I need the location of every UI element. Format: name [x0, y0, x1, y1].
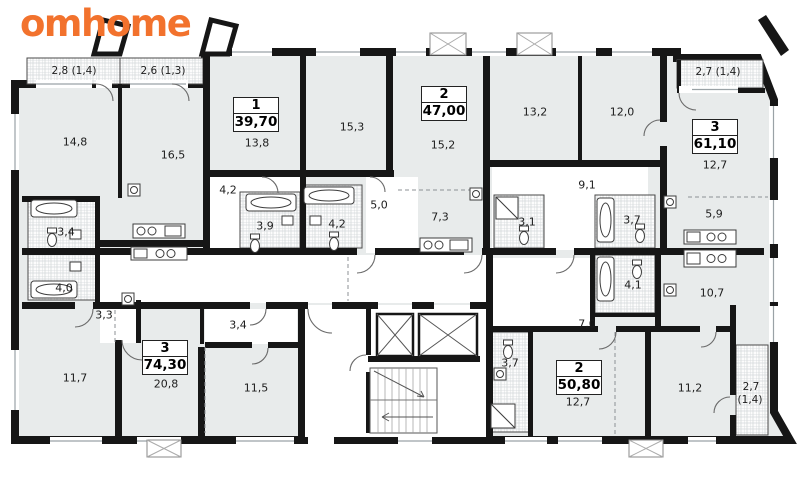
- omhome-logo: omhome: [20, 2, 190, 46]
- apartment-total-area: 50,80: [557, 377, 601, 394]
- elevator-shafts: [377, 314, 477, 356]
- room-area-label: 3,7: [623, 214, 641, 227]
- room-area-label: 4,2: [328, 218, 346, 231]
- apartment-rooms-count: 2: [557, 361, 601, 377]
- room-area-label: 5,0: [370, 199, 388, 212]
- apartment-badge[interactable]: 1 39,70: [233, 97, 279, 132]
- room-area-label: 4,1: [624, 279, 642, 292]
- room-area-label: 16,5: [161, 149, 186, 162]
- balcony-area-label: 2,7: [743, 381, 760, 393]
- apartment-rooms-count: 1: [234, 98, 278, 114]
- room-area-label: 3,3: [95, 309, 113, 322]
- room-area-label: 12,7: [703, 159, 728, 172]
- room-area-label: 3,1: [518, 216, 536, 229]
- apartment-total-area: 74,30: [143, 357, 187, 374]
- room-area-label: 7,0: [578, 318, 596, 331]
- floorplan-page: omhome 1 39,70 2 47,00 3 61,10 3 74,30 2…: [0, 0, 800, 480]
- room-area-label: 12,0: [610, 106, 635, 119]
- room-area-label: 3,7: [501, 357, 519, 370]
- room-area-label: 4,0: [55, 282, 73, 295]
- room-area-label: 15,3: [340, 121, 365, 134]
- floorplan-drawing: [0, 0, 800, 480]
- room-area-label: 5,9: [705, 208, 723, 221]
- room-area-label: 14,8: [63, 136, 88, 149]
- apartment-rooms-count: 3: [143, 341, 187, 357]
- room-area-label: 10,7: [700, 287, 725, 300]
- room-area-label: 11,2: [678, 382, 703, 395]
- balcony-area-label: 2,8 (1,4): [52, 65, 97, 77]
- apartment-rooms-count: 2: [422, 87, 466, 103]
- apartment-rooms-count: 3: [693, 120, 737, 136]
- room-area-label: 11,7: [63, 372, 88, 385]
- room-area-label: 11,5: [244, 382, 269, 395]
- room-area-label: 4,2: [219, 184, 237, 197]
- apartment-total-area: 47,00: [422, 103, 466, 120]
- room-area-label: 13,8: [245, 137, 270, 150]
- apartment-badge[interactable]: 2 47,00: [421, 86, 467, 121]
- balcony-area-label: 2,6 (1,3): [141, 65, 186, 77]
- room-area-label: 13,2: [523, 106, 548, 119]
- room-area-label: 12,7: [566, 396, 591, 409]
- apartment-total-area: 61,10: [693, 136, 737, 153]
- apartment-total-area: 39,70: [234, 114, 278, 131]
- room-area-label: 3,9: [256, 220, 274, 233]
- room-area-label: 9,1: [578, 179, 596, 192]
- room-area-label: 15,2: [431, 139, 456, 152]
- balcony-area-label: (1,4): [738, 394, 763, 406]
- room-area-label: 7,3: [431, 211, 449, 224]
- apartment-badge[interactable]: 3 74,30: [142, 340, 188, 375]
- apartment-badge[interactable]: 2 50,80: [556, 360, 602, 395]
- staircase: [370, 368, 437, 433]
- room-area-label: 3,4: [57, 226, 75, 239]
- room-area-label: 3,4: [229, 319, 247, 332]
- balcony-area-label: 2,7 (1,4): [696, 66, 741, 78]
- apartment-badge[interactable]: 3 61,10: [692, 119, 738, 154]
- room-area-label: 20,8: [154, 378, 179, 391]
